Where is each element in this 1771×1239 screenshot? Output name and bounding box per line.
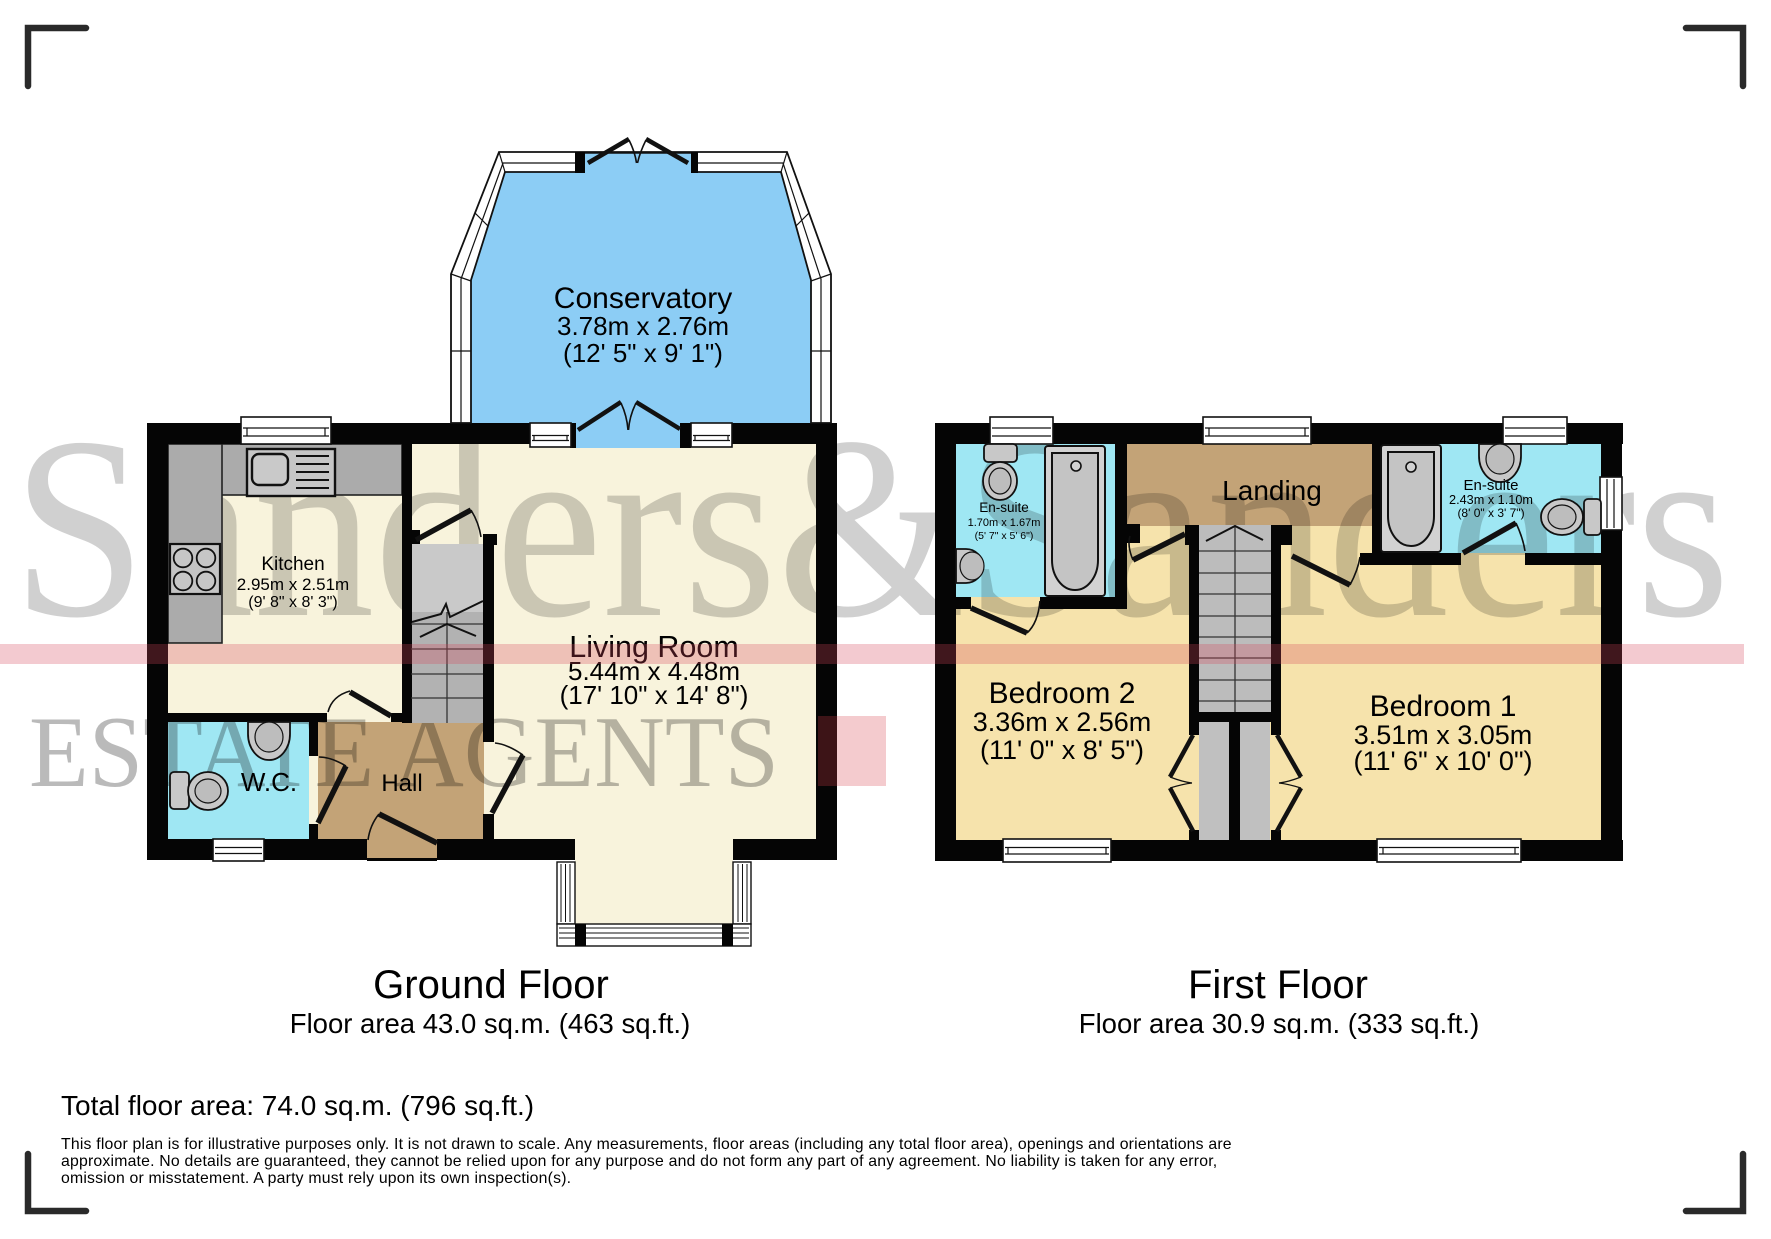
svg-text:Ground Floor: Ground Floor	[373, 963, 609, 1007]
svg-text:(12' 5" x 9' 1"): (12' 5" x 9' 1")	[563, 338, 723, 368]
svg-text:(11' 6" x 10' 0"): (11' 6" x 10' 0")	[1353, 746, 1532, 776]
svg-text:2.95m x 2.51m: 2.95m x 2.51m	[237, 575, 349, 594]
svg-text:3.36m x 2.56m: 3.36m x 2.56m	[973, 707, 1152, 737]
svg-text:Kitchen: Kitchen	[261, 554, 324, 575]
svg-text:W.C.: W.C.	[241, 767, 297, 797]
svg-text:Floor area 43.0 sq.m. (463 sq.: Floor area 43.0 sq.m. (463 sq.ft.)	[290, 1008, 690, 1039]
svg-text:2.43m x 1.10m: 2.43m x 1.10m	[1449, 493, 1533, 507]
svg-text:En-suite: En-suite	[1463, 477, 1518, 494]
svg-text:approximate. No details are gu: approximate. No details are guaranteed, …	[61, 1153, 1217, 1170]
svg-text:Hall: Hall	[381, 770, 422, 797]
svg-text:First Floor: First Floor	[1188, 963, 1368, 1007]
svg-text:(9' 8" x 8' 3"): (9' 8" x 8' 3")	[248, 594, 338, 611]
svg-text:3.78m x 2.76m: 3.78m x 2.76m	[557, 311, 729, 341]
svg-text:1.70m x 1.67m: 1.70m x 1.67m	[968, 517, 1041, 529]
svg-text:This floor plan is for illustr: This floor plan is for illustrative purp…	[61, 1136, 1232, 1153]
svg-text:(8' 0" x 3' 7"): (8' 0" x 3' 7")	[1457, 506, 1524, 520]
svg-text:Bedroom 2: Bedroom 2	[989, 677, 1136, 710]
svg-text:(5' 7" x 5' 6"): (5' 7" x 5' 6")	[975, 530, 1034, 542]
svg-text:Floor area 30.9 sq.m. (333 sq.: Floor area 30.9 sq.m. (333 sq.ft.)	[1079, 1008, 1479, 1039]
svg-text:(11' 0" x 8' 5"): (11' 0" x 8' 5")	[980, 735, 1144, 765]
svg-text:Bedroom 1: Bedroom 1	[1370, 690, 1517, 723]
svg-text:Total floor area: 74.0 sq.m. (: Total floor area: 74.0 sq.m. (796 sq.ft.…	[61, 1090, 534, 1121]
svg-text:Landing: Landing	[1222, 475, 1322, 506]
svg-text:En-suite: En-suite	[979, 500, 1029, 515]
svg-text:(17' 10" x 14' 8"): (17' 10" x 14' 8")	[560, 680, 749, 710]
svg-text:omission or misstatement. A pa: omission or misstatement. A party must r…	[61, 1170, 571, 1187]
